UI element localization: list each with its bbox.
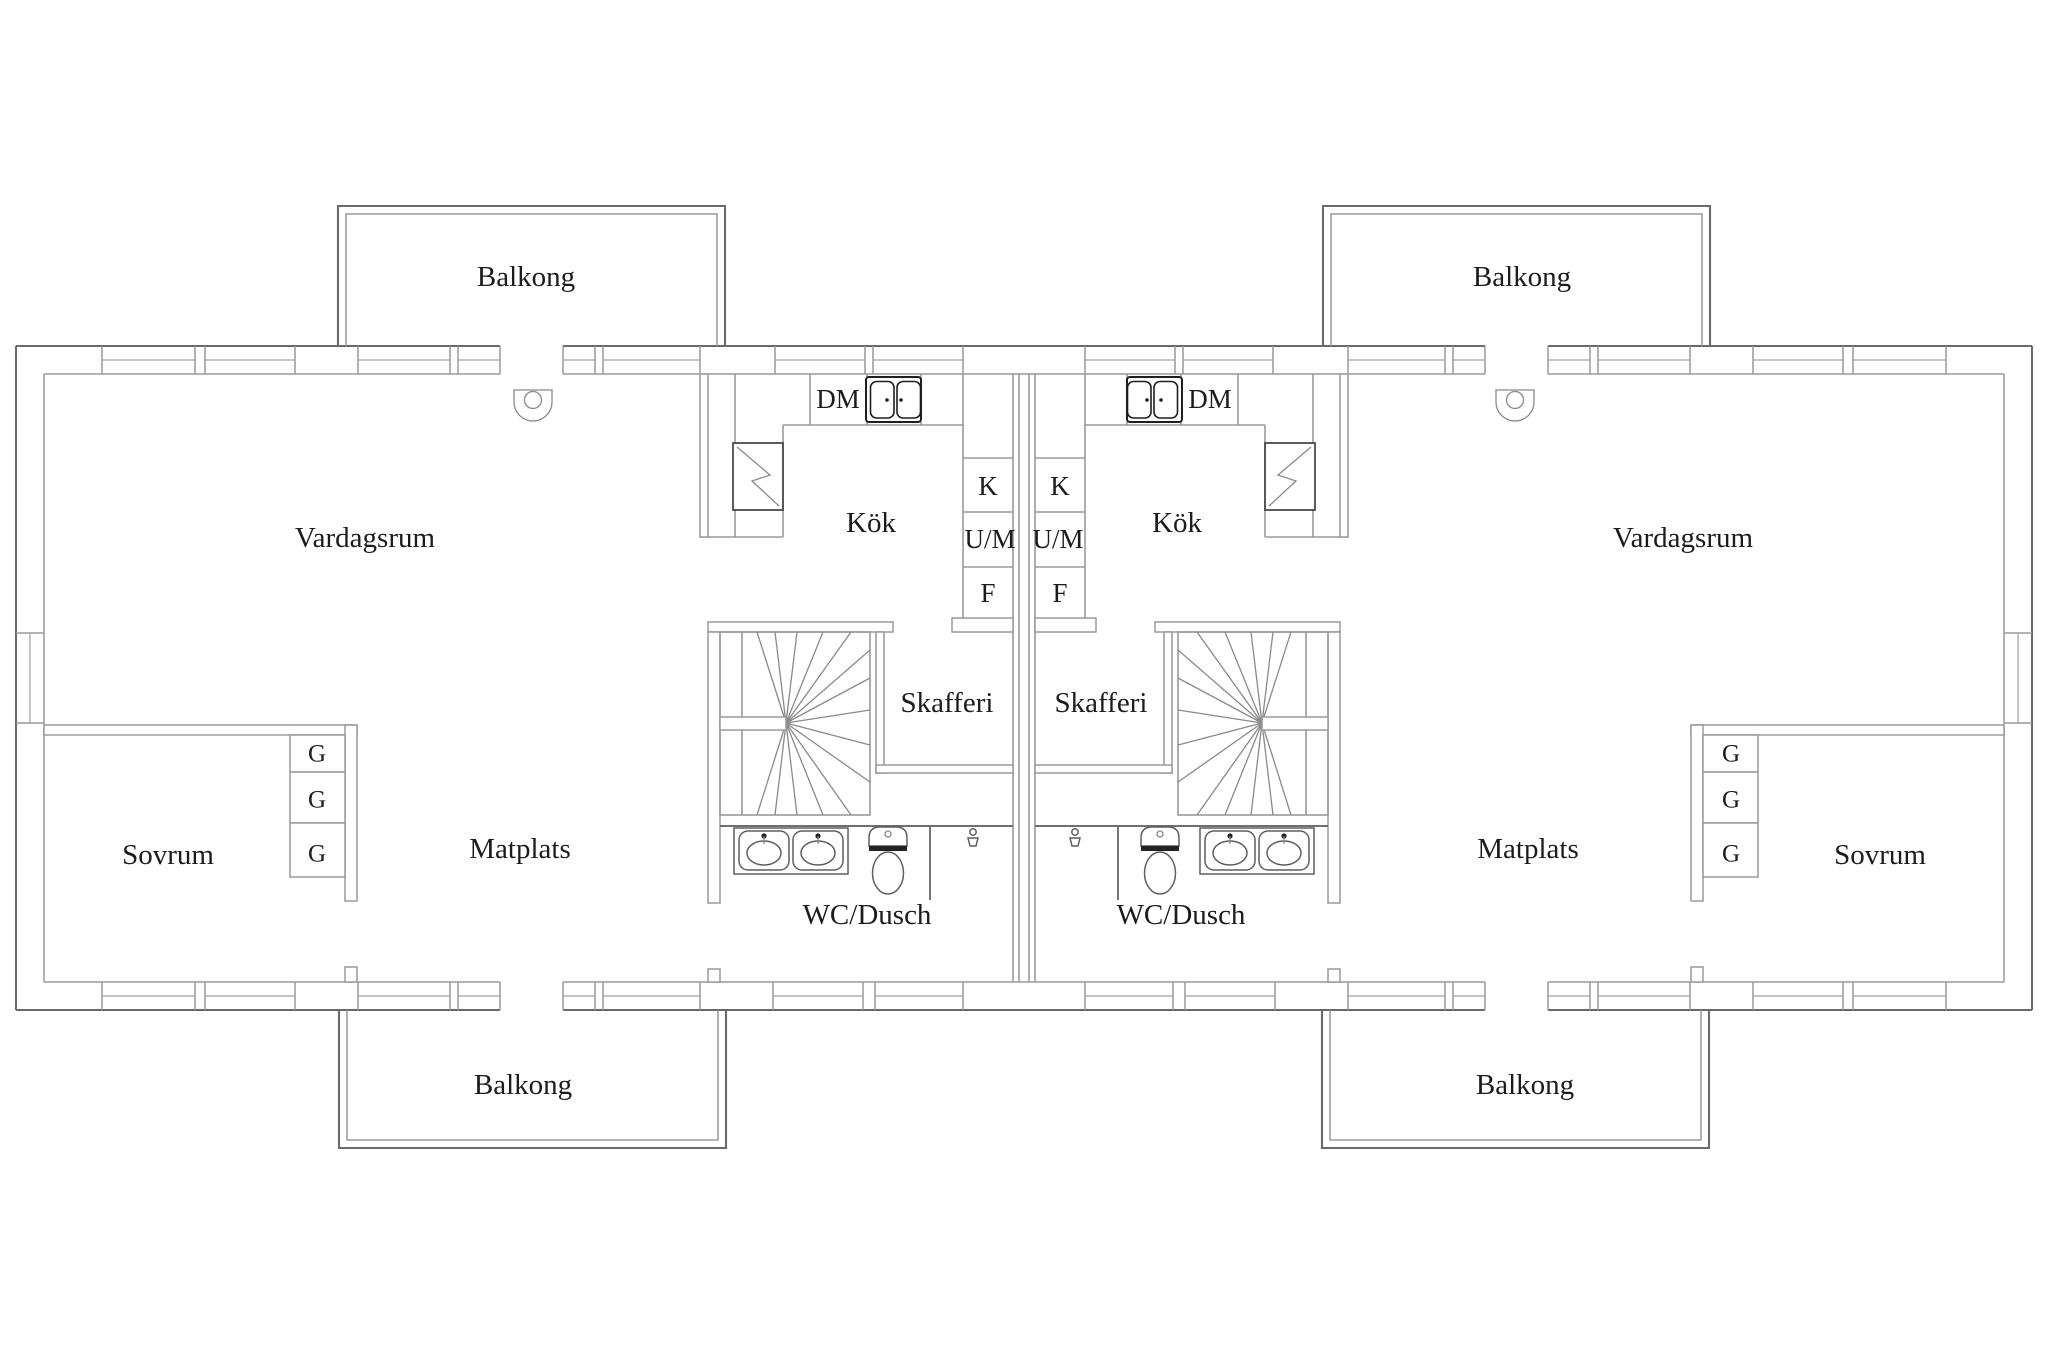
label-oven-micro-right: U/M [1032, 524, 1083, 554]
room-label-sovrum-right: Sovrum [1834, 839, 1926, 871]
room-label-wc-dusch-left: WC/Dusch [803, 899, 932, 931]
room-label-balkong-top-right: Balkong [1473, 261, 1571, 293]
apartment-right-geometry [1024, 206, 2032, 1148]
label-wardrobe-1-left: G [308, 741, 326, 768]
label-fridge-left: K [978, 471, 998, 501]
room-label-matplats-right: Matplats [1477, 833, 1579, 865]
apartment-left-geometry [16, 206, 1024, 1148]
room-label-kok-right: Kök [1152, 507, 1202, 539]
room-label-balkong-bottom-right: Balkong [1476, 1069, 1574, 1101]
label-wardrobe-1-right: G [1722, 741, 1740, 768]
label-dishwasher-right: DM [1188, 384, 1232, 414]
label-wardrobe-3-right: G [1722, 841, 1740, 868]
label-freezer-right: F [1052, 578, 1067, 608]
room-label-skafferi-right: Skafferi [1055, 687, 1148, 719]
room-label-kok-left: Kök [846, 507, 896, 539]
room-label-wc-dusch-right: WC/Dusch [1117, 899, 1246, 931]
room-label-vardagsrum-left: Vardagsrum [295, 522, 436, 554]
label-oven-micro-left: U/M [964, 524, 1015, 554]
label-wardrobe-2-left: G [308, 787, 326, 814]
room-label-vardagsrum-right: Vardagsrum [1613, 522, 1754, 554]
room-label-matplats-left: Matplats [469, 833, 571, 865]
label-fridge-right: K [1050, 471, 1070, 501]
label-wardrobe-3-left: G [308, 841, 326, 868]
label-dishwasher-left: DM [816, 384, 860, 414]
label-freezer-left: F [980, 578, 995, 608]
floor-plan-canvas: Balkong Vardagsrum DM Kök K U/M F Skaffe… [0, 0, 2048, 1365]
room-label-balkong-bottom-left: Balkong [474, 1069, 572, 1101]
label-wardrobe-2-right: G [1722, 787, 1740, 814]
floor-plan-page: Balkong Vardagsrum DM Kök K U/M F Skaffe… [0, 0, 2048, 1365]
room-label-sovrum-left: Sovrum [122, 839, 214, 871]
room-label-balkong-top-left: Balkong [477, 261, 575, 293]
room-label-skafferi-left: Skafferi [901, 687, 994, 719]
